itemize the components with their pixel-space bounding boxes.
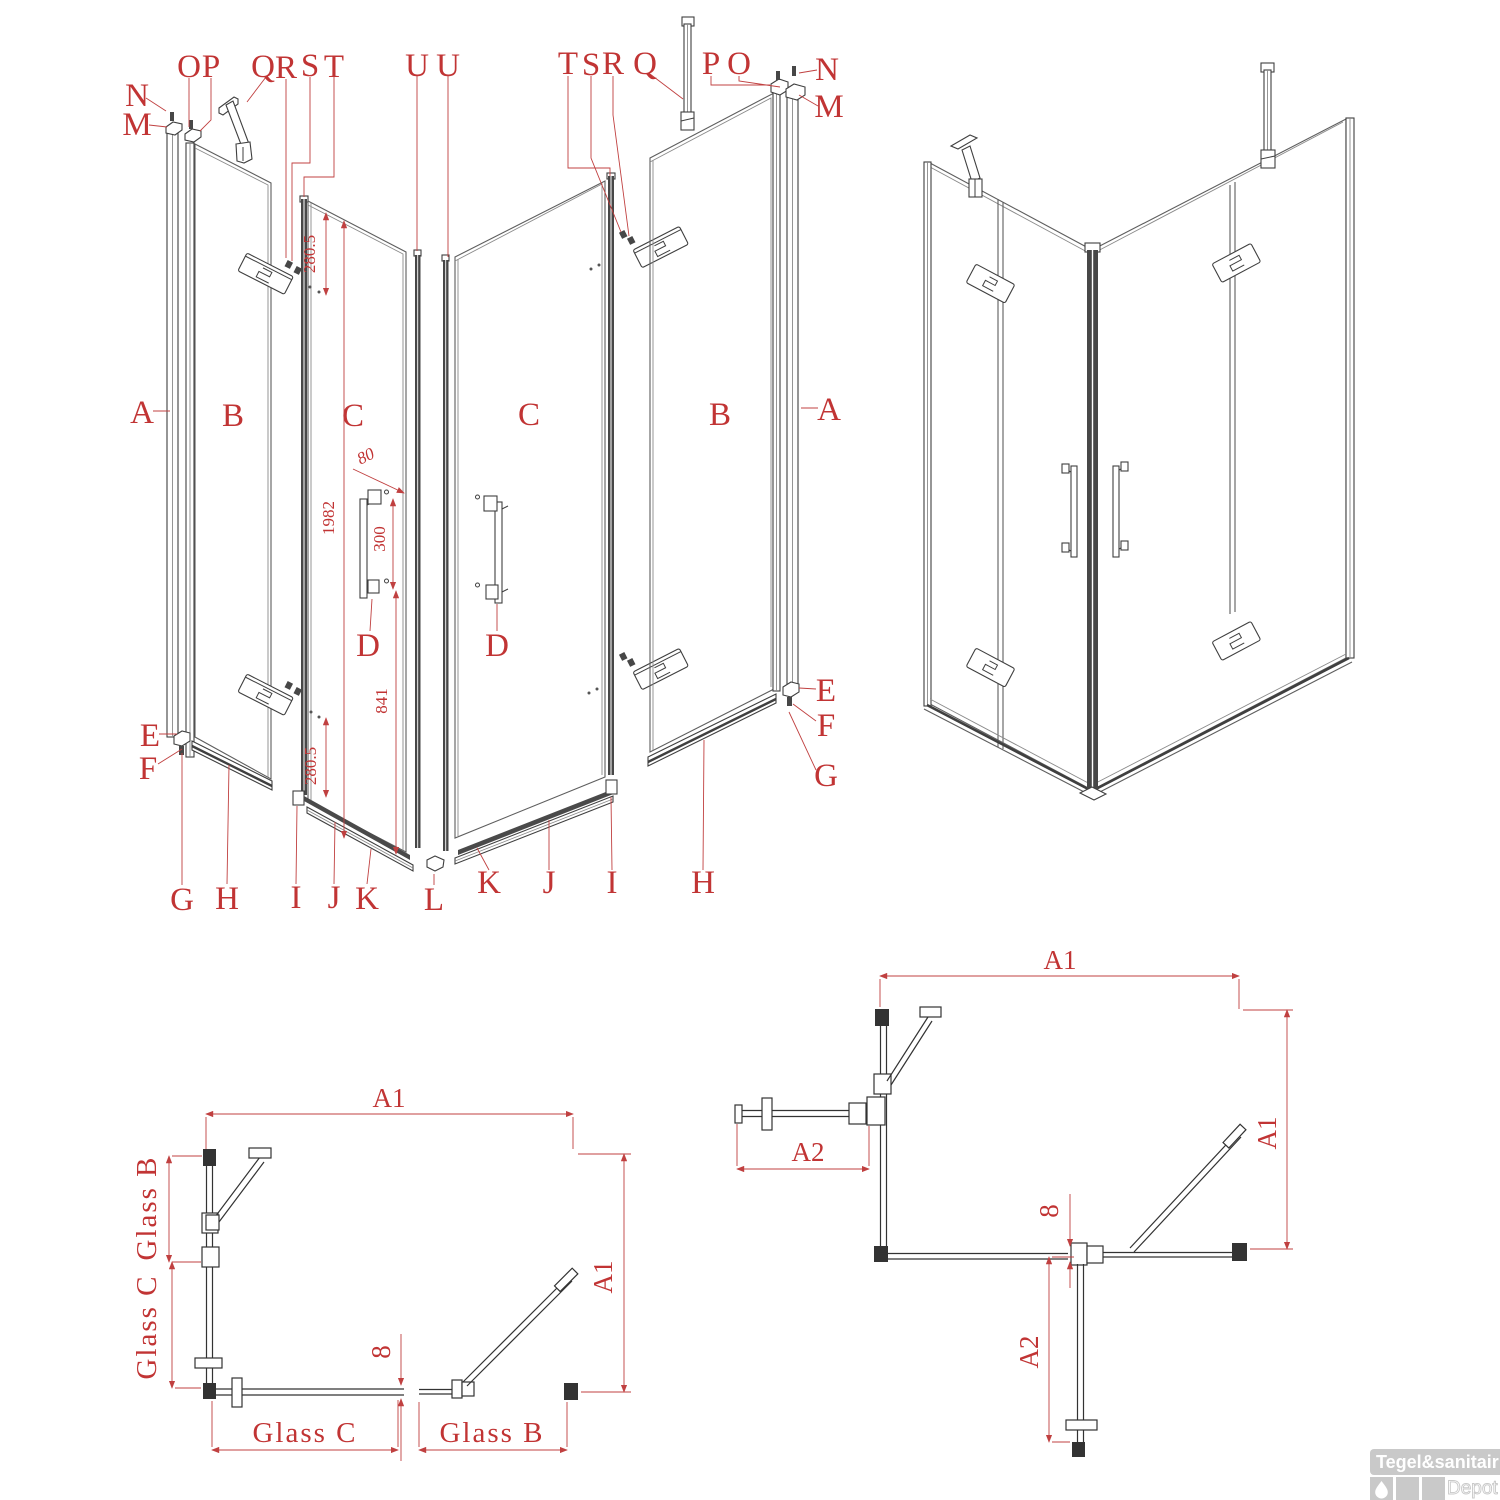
svg-text:F: F (139, 751, 157, 787)
svg-text:Glass C: Glass C (131, 1274, 163, 1379)
svg-text:D: D (356, 628, 380, 664)
svg-text:T: T (324, 49, 344, 85)
svg-text:T: T (558, 46, 578, 82)
svg-text:Q: Q (251, 49, 275, 85)
svg-text:K: K (477, 865, 501, 901)
svg-text:M: M (122, 107, 151, 143)
svg-text:I: I (291, 880, 302, 916)
svg-text:C: C (518, 397, 540, 433)
svg-text:L: L (424, 882, 444, 918)
svg-text:A1: A1 (1044, 945, 1077, 975)
svg-text:N: N (815, 52, 839, 88)
svg-text:280.5: 280.5 (300, 235, 319, 273)
svg-text:A2: A2 (1014, 1336, 1044, 1369)
svg-text:H: H (691, 865, 715, 901)
svg-text:I: I (607, 865, 618, 901)
svg-text:Glass B: Glass B (131, 1155, 163, 1260)
svg-text:E: E (816, 673, 836, 709)
svg-text:280.5: 280.5 (301, 747, 320, 785)
svg-text:A2: A2 (792, 1137, 825, 1167)
svg-text:Glass B: Glass B (439, 1417, 544, 1449)
svg-text:U: U (405, 48, 429, 84)
svg-text:R: R (275, 50, 297, 86)
svg-text:Depot: Depot (1447, 1478, 1498, 1499)
svg-text:K: K (355, 881, 379, 917)
svg-text:S: S (301, 48, 319, 84)
svg-text:G: G (170, 882, 194, 918)
svg-text:Tegel&sanitair: Tegel&sanitair (1376, 1452, 1499, 1472)
svg-text:H: H (215, 881, 239, 917)
svg-text:F: F (817, 708, 835, 744)
svg-text:O: O (727, 46, 751, 82)
svg-text:C: C (342, 398, 364, 434)
svg-text:Q: Q (633, 46, 657, 82)
svg-text:R: R (602, 46, 624, 82)
svg-text:J: J (328, 880, 341, 916)
svg-text:O: O (177, 49, 201, 85)
svg-text:E: E (140, 718, 160, 754)
svg-text:8: 8 (366, 1345, 396, 1359)
svg-text:B: B (709, 397, 731, 433)
svg-text:D: D (485, 628, 509, 664)
svg-text:A1: A1 (373, 1083, 406, 1113)
svg-text:A1: A1 (1252, 1117, 1282, 1150)
svg-text:S: S (582, 47, 600, 83)
svg-text:U: U (436, 48, 460, 84)
svg-text:Glass C: Glass C (252, 1417, 357, 1449)
svg-text:300: 300 (370, 526, 389, 552)
svg-text:8: 8 (1034, 1204, 1064, 1218)
svg-text:841: 841 (372, 688, 391, 714)
svg-text:M: M (814, 89, 843, 125)
svg-text:80: 80 (354, 444, 378, 469)
svg-text:A1: A1 (588, 1261, 618, 1294)
svg-text:G: G (814, 758, 838, 794)
svg-text:1982: 1982 (319, 501, 338, 535)
svg-text:B: B (222, 398, 244, 434)
svg-text:A: A (130, 395, 154, 431)
svg-text:J: J (543, 865, 556, 901)
svg-text:P: P (702, 46, 720, 82)
svg-text:A: A (817, 392, 841, 428)
svg-text:P: P (202, 49, 220, 85)
